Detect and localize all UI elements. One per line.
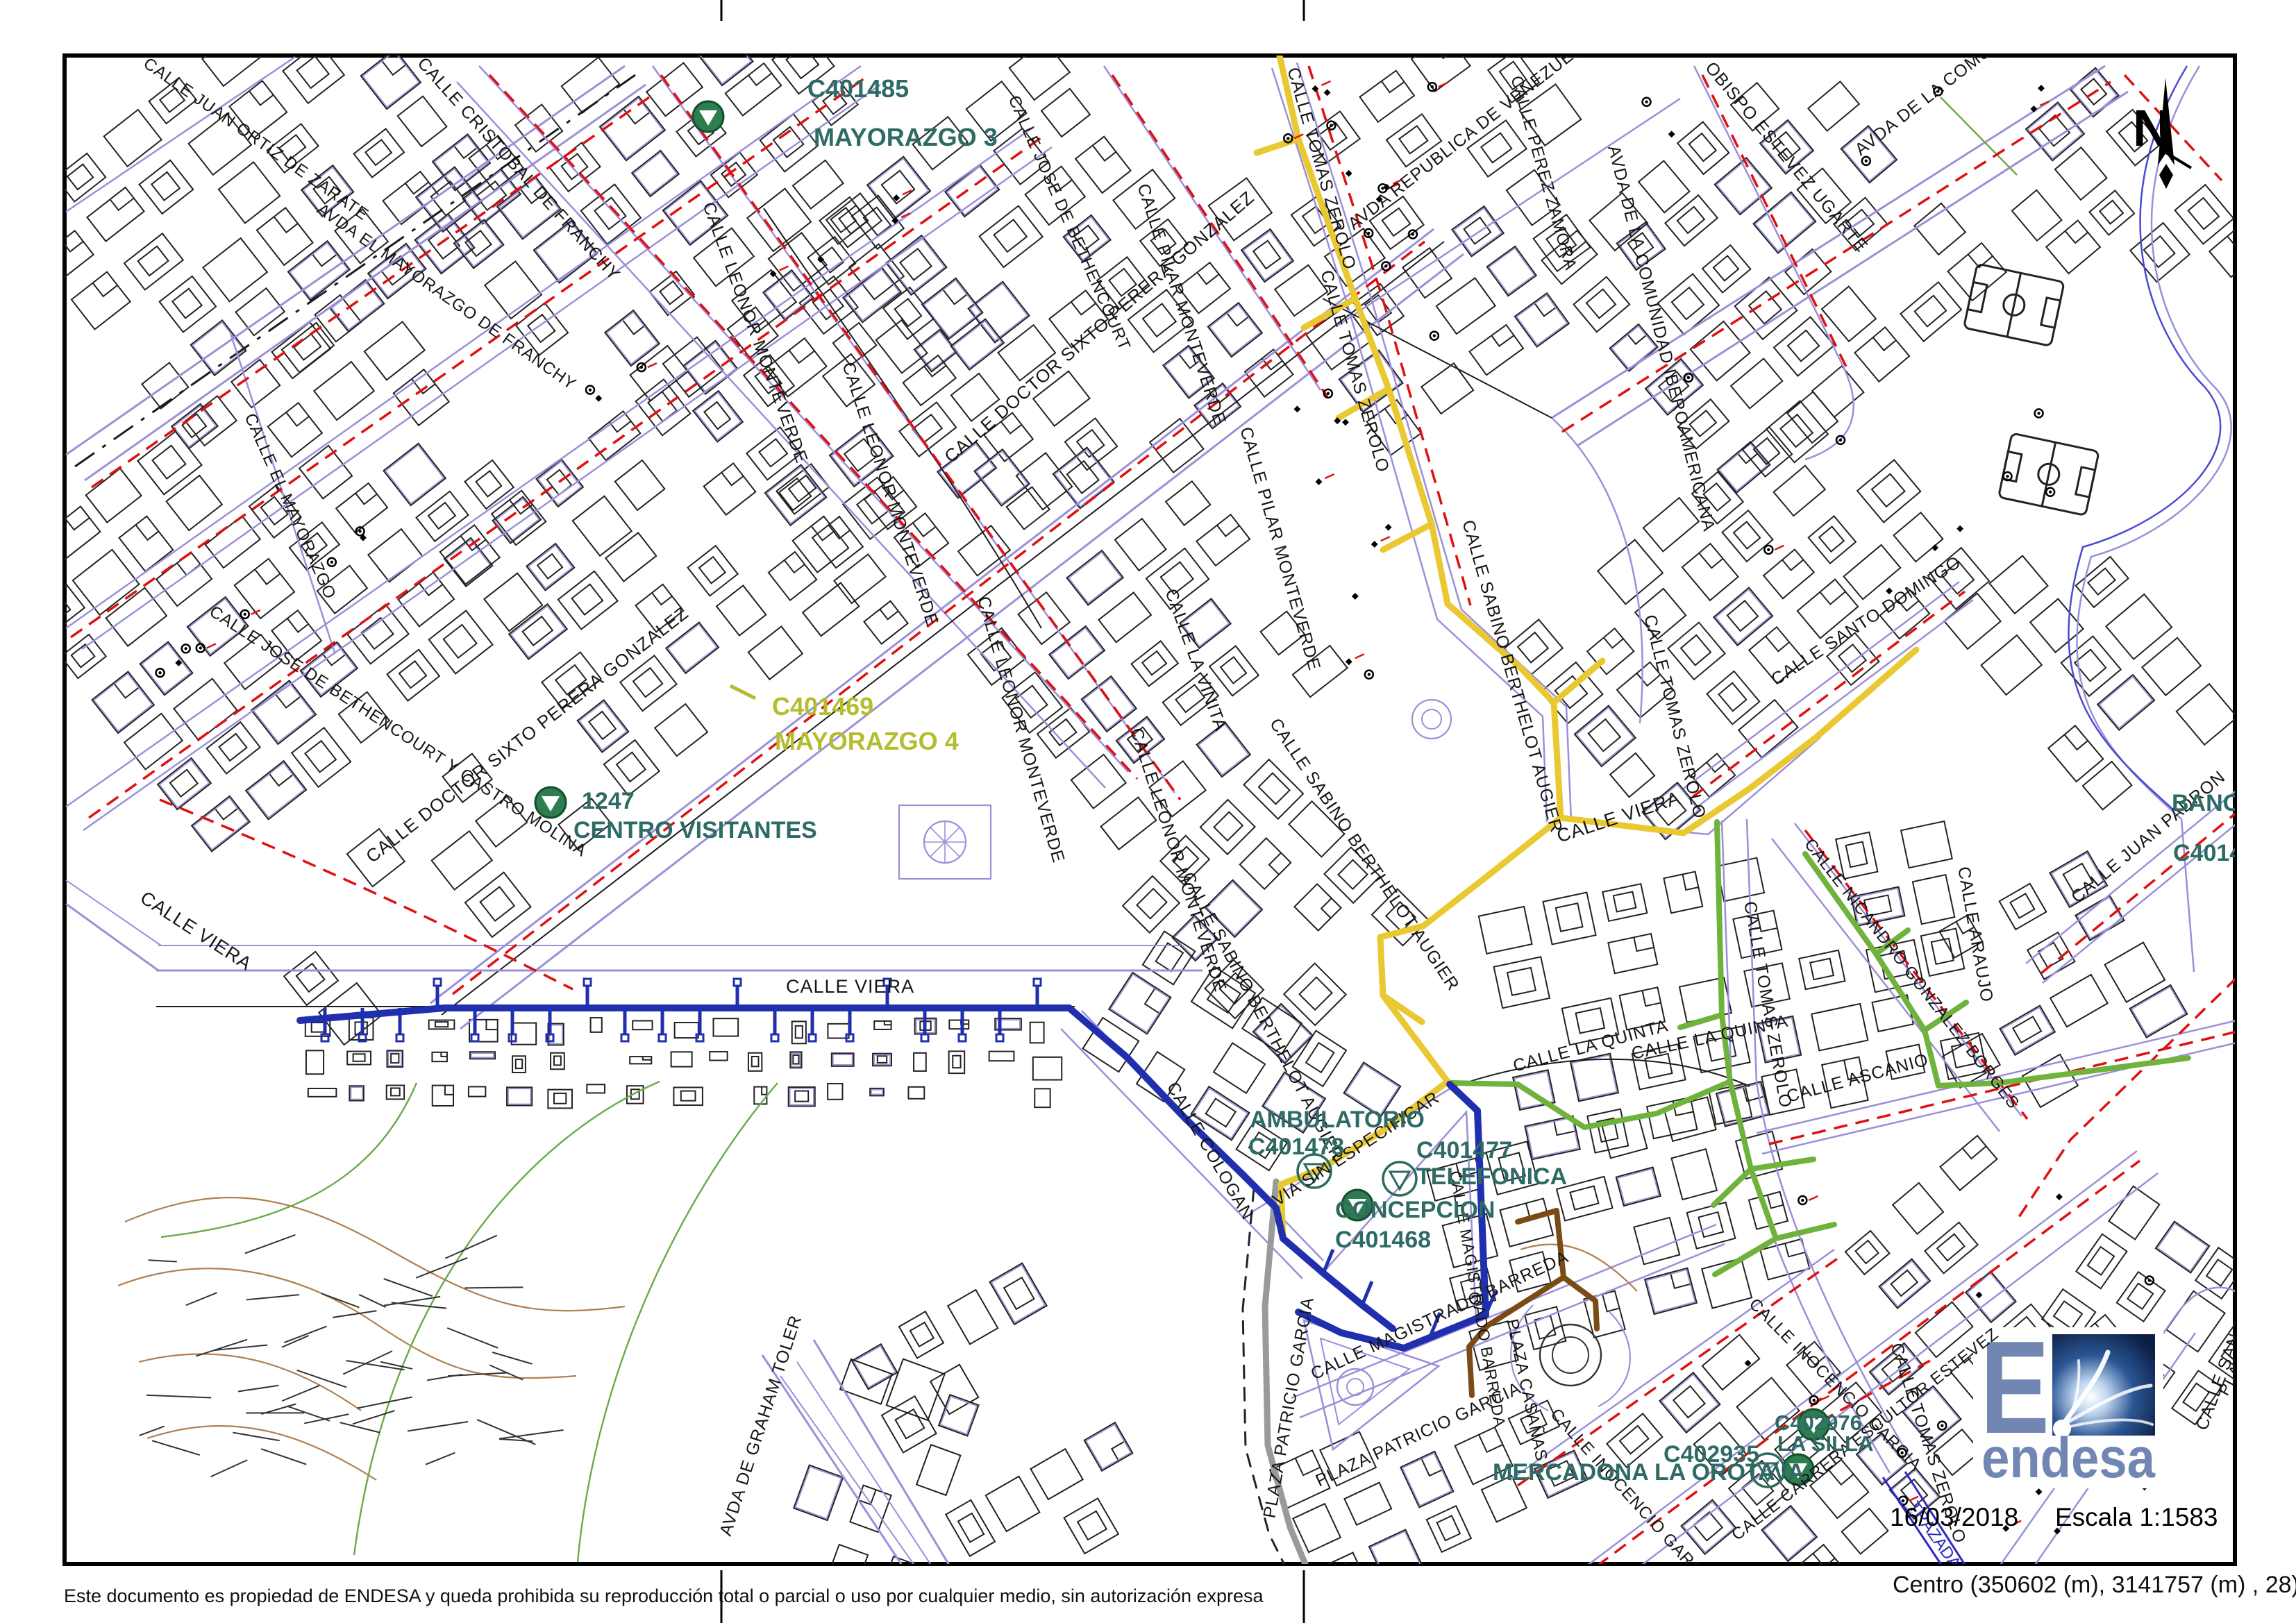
facility-label: C401469 — [772, 692, 873, 721]
parcel-block — [305, 1018, 1062, 1108]
map-scale: Escala 1:1583 — [2055, 1503, 2218, 1531]
facility-label: TELEFONICA — [1416, 1163, 1567, 1190]
parcel-block — [0, 276, 596, 865]
facility-label: C401485 — [807, 74, 909, 103]
road-line — [780, 1376, 915, 1566]
transformer-marker-outline — [1383, 1162, 1416, 1195]
road-line — [1694, 66, 1854, 460]
facility-label: 1247 — [582, 788, 635, 814]
road-line — [1684, 582, 1959, 789]
facility-label: C401468 — [1335, 1227, 1431, 1253]
deco-line — [139, 1354, 361, 1411]
network-green — [1715, 1169, 1776, 1275]
red-dashed-line — [2015, 977, 2237, 1223]
facility-label: C402935 — [1664, 1441, 1759, 1468]
network-yellow — [1554, 661, 1602, 703]
facility-label: CONCEPCION — [1335, 1197, 1495, 1223]
network-blue — [300, 1008, 1069, 1020]
facility-label: C401477 — [1416, 1137, 1512, 1163]
network-green — [1776, 1225, 1834, 1238]
endesa-logo-image — [2052, 1334, 2155, 1438]
street-label: CALLE LEONOR MONTEVERDE — [838, 360, 942, 628]
street-label: CALLE MAGISTRADO BARREDA — [1308, 1247, 1572, 1384]
deco-line — [125, 1197, 625, 1311]
street-label: CALLE PILAR MONTEVERDE — [1236, 425, 1324, 673]
blue-note: TRAZADA SEGUN INDICACION — [1883, 1472, 2059, 1623]
deco-line — [147, 1426, 376, 1480]
street-label: CALLE SABINO BERTHELOT AUGIER — [1458, 518, 1566, 835]
endesa-map-page: { "titleblock": { "date": "16/03/2018", … — [0, 0, 2296, 1623]
footer-disclaimer: Este documento es propiedad de ENDESA y … — [64, 1586, 1264, 1606]
facility-label: MAYORAZGO 3 — [814, 123, 998, 151]
street-label: CALLE SANTO DOMINGO — [1768, 552, 1965, 689]
facility-label: MAYORAZGO 4 — [775, 727, 959, 755]
endesa-logo-wordmark: endesa — [1981, 1427, 2156, 1490]
network-green — [1805, 854, 2188, 1086]
deco-line — [161, 1083, 417, 1237]
facility-label: C401473 — [2173, 840, 2269, 866]
facility-label: C401478 — [1248, 1134, 1344, 1160]
deco-line — [118, 1268, 576, 1378]
footer-center-coords: Centro (350602 (m), 3141757 (m) , 28) — [1893, 1572, 2296, 1598]
network-blue — [1450, 1084, 1477, 1111]
red-dashed-line — [1702, 75, 1847, 368]
network-green — [1451, 1082, 1730, 1127]
facility-label: CENTRO VISITANTES — [573, 817, 817, 843]
building-parcels-layer — [0, 0, 2296, 1623]
network-yellow — [1380, 818, 1561, 1082]
parcel-block — [1943, 512, 2243, 823]
street-label: CALLE TOMAS ZEROLO — [1740, 900, 1795, 1109]
deco-line — [354, 1082, 660, 1555]
street-label: CALLE VIERA — [137, 887, 256, 975]
street-label: CALLE ARAUJO — [1954, 865, 1997, 1004]
endesa-logo: E endesa — [1973, 1314, 2163, 1490]
street-label: CALLE LA VINITA — [1161, 586, 1230, 734]
map-canvas: N TRAZADA SEGUN INDICACION E — [0, 0, 2296, 1623]
parcel-block — [1209, 0, 1675, 455]
road-line — [66, 904, 158, 970]
street-label: AVDA DE GRAHAM TOLER — [716, 1313, 805, 1538]
street-label: CALLE SABINO BERTHELOT AUGIER — [1266, 715, 1463, 995]
facility-label: AMBULATORIO — [1250, 1107, 1425, 1133]
road-line — [797, 1362, 932, 1566]
street-label: CALLE COLOGAN — [1163, 1079, 1257, 1223]
street-label: CALLE VIERA — [786, 976, 914, 997]
parcel-block — [1536, 35, 2012, 506]
transformer-marker — [693, 101, 723, 132]
facility-label: BANCO — [2172, 790, 2259, 816]
network-brown — [1518, 1211, 1557, 1222]
facility-label: LA SILLA — [1777, 1431, 1873, 1456]
road-line — [2068, 66, 2220, 809]
deco-line — [1598, 1312, 1630, 1406]
red-dashed-line — [92, 96, 651, 487]
parcel-block — [4, 0, 529, 463]
